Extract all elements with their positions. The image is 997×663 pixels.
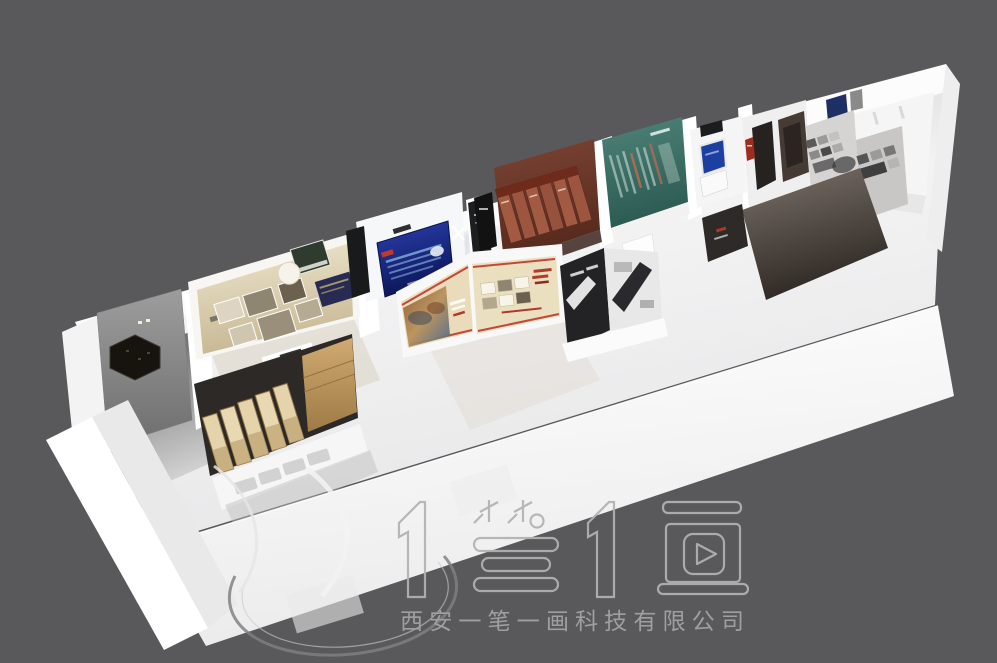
emblem-texture <box>147 352 150 354</box>
tv-display-exhibit <box>690 116 747 208</box>
company-name-text: 西安一笔一画科技有限公司 <box>400 609 750 635</box>
photo <box>482 297 497 309</box>
photo <box>497 279 512 291</box>
photo <box>514 277 529 289</box>
mural-shade <box>408 311 432 325</box>
photo <box>516 291 531 303</box>
sign-text-dash <box>747 145 752 147</box>
photo <box>499 294 514 306</box>
emblem-texture <box>126 350 129 352</box>
spotlight-dot <box>138 321 142 324</box>
spotlight-dot <box>146 319 150 322</box>
emblem-texture <box>138 358 141 360</box>
end-room-gray-panel <box>850 89 863 111</box>
screenshot-root: 1笔1画 西安 <box>0 0 997 663</box>
mural-shade <box>427 302 445 314</box>
panel-text-dash <box>479 208 488 210</box>
exhibition-hall-render: 1笔1画 西安 <box>0 0 997 663</box>
mono-text-block <box>614 262 632 272</box>
photo <box>481 282 496 294</box>
mono-text-block <box>640 300 654 308</box>
